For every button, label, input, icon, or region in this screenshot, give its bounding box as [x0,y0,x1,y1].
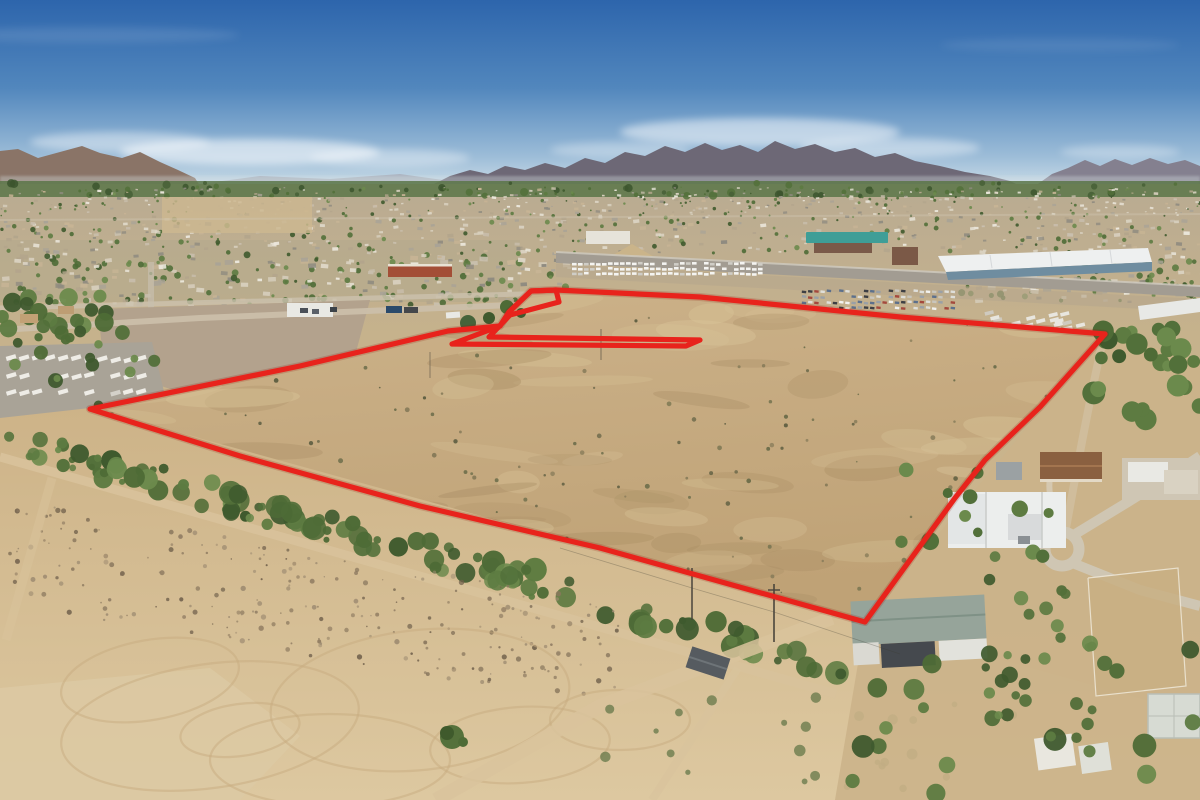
small-white-structure [446,312,460,319]
blue-semi-truck [386,306,402,313]
house-under-construction [850,594,987,669]
resort-building [20,314,38,323]
gray-shed [996,462,1022,480]
aerial-photo [0,0,1200,800]
strip-mall-parapet [388,264,452,267]
house-top-right [1122,458,1200,500]
red-roof-strip-mall [388,265,452,277]
resort-building-2 [58,306,74,314]
apartment-blocks [586,231,630,244]
house-brown-roof [1040,452,1102,482]
white-canopy-building [287,303,333,317]
fenced-yard [1088,568,1186,696]
tan-dirt-lot [162,197,312,233]
dark-truck [404,307,418,313]
brown-midrise [892,247,918,265]
brown-building [814,242,872,253]
white-pad-2 [1078,742,1112,774]
aerial-photo-canvas [0,0,1200,800]
teal-roof-building [806,232,888,243]
greenbelt [0,181,1200,197]
